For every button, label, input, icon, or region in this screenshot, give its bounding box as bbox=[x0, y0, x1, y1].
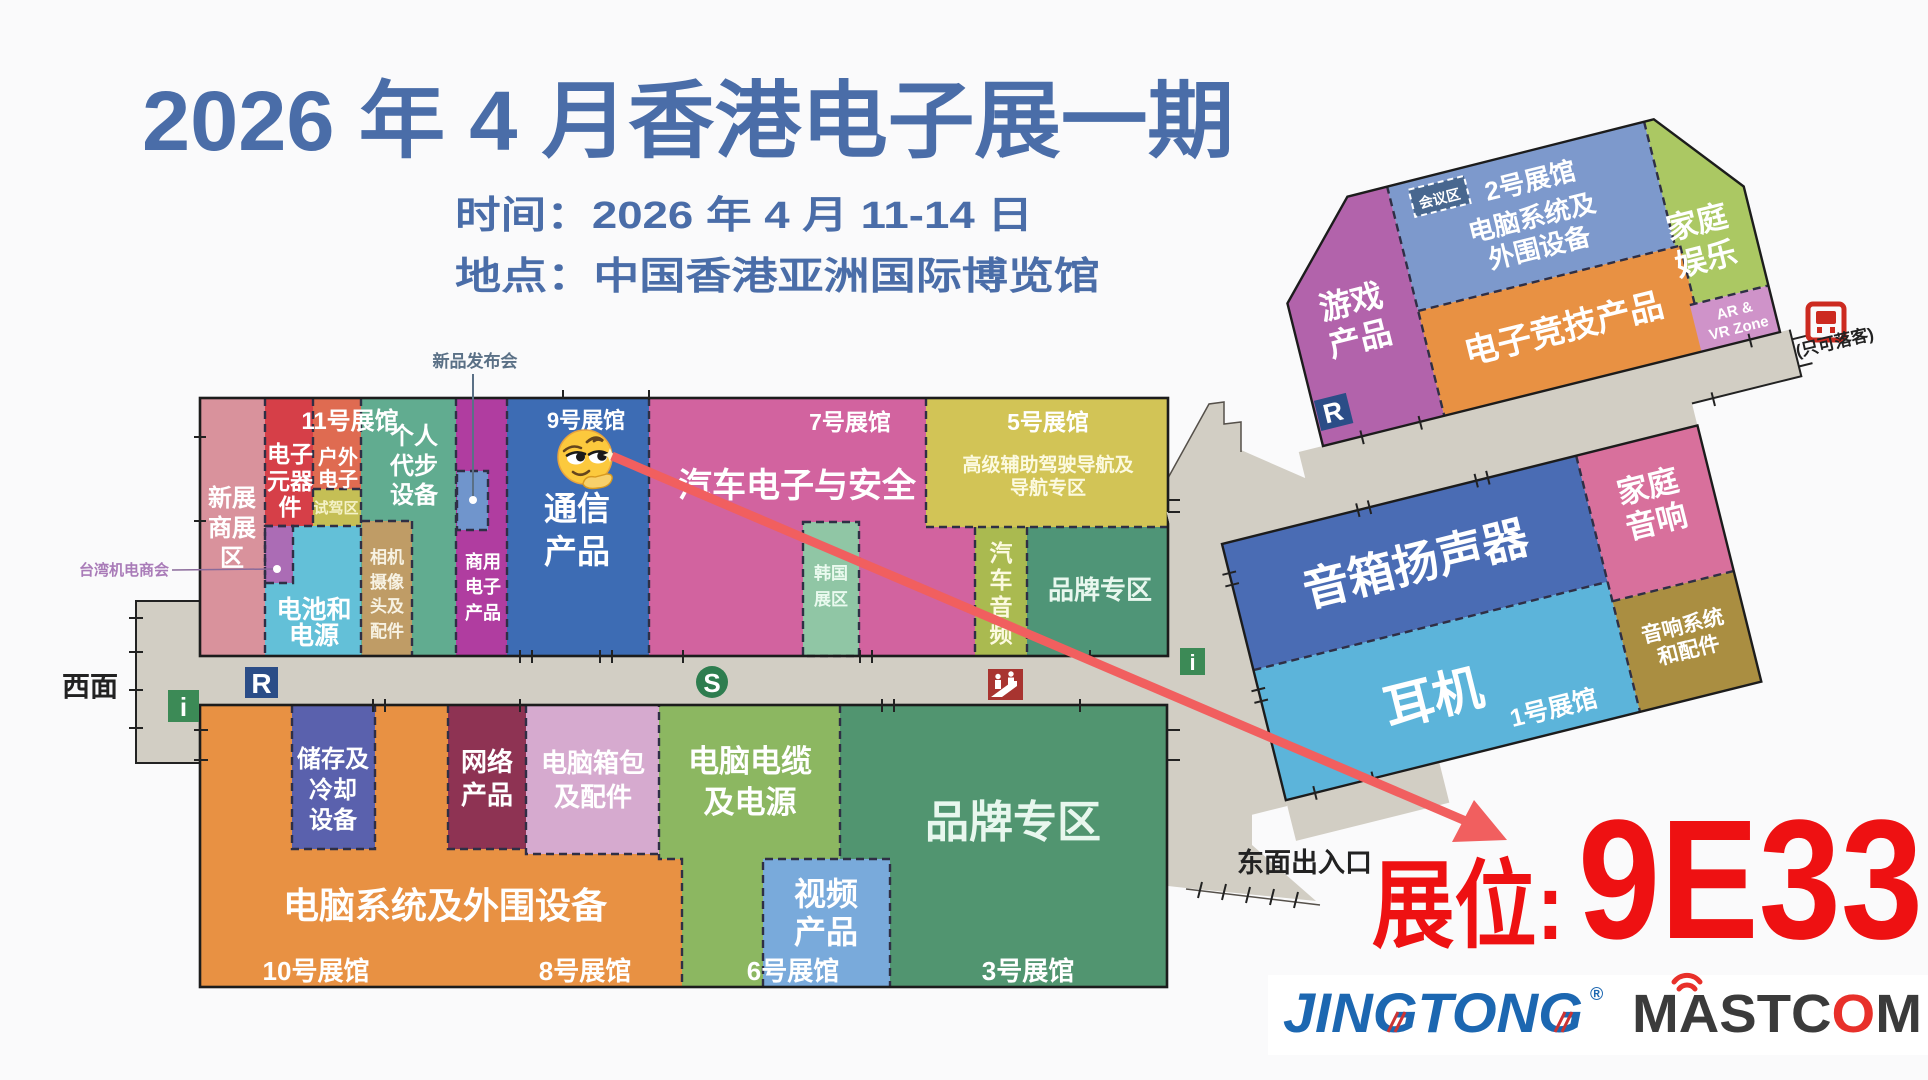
svg-text:元器: 元器 bbox=[267, 468, 314, 494]
svg-text:件: 件 bbox=[279, 494, 302, 520]
svg-text:JINGTONG: JINGTONG bbox=[1283, 981, 1583, 1044]
svg-text:试驾区: 试驾区 bbox=[313, 499, 358, 517]
svg-text:西面: 西面 bbox=[62, 671, 118, 702]
svg-text:冷却: 冷却 bbox=[309, 776, 357, 804]
svg-text:i: i bbox=[1189, 650, 1195, 675]
svg-text:5号展馆: 5号展馆 bbox=[1007, 409, 1089, 435]
svg-text:区: 区 bbox=[220, 545, 244, 572]
svg-text:11号展馆: 11号展馆 bbox=[301, 407, 398, 435]
svg-text:电池和: 电池和 bbox=[276, 596, 351, 624]
svg-text:户外: 户外 bbox=[318, 445, 358, 469]
svg-text:头及: 头及 bbox=[370, 597, 405, 616]
svg-text:9E33: 9E33 bbox=[1578, 785, 1923, 975]
svg-text:电脑电缆: 电脑电缆 bbox=[688, 744, 812, 779]
svg-text:3号展馆: 3号展馆 bbox=[982, 956, 1074, 986]
svg-text:商用: 商用 bbox=[465, 551, 501, 572]
svg-text:7号展馆: 7号展馆 bbox=[809, 409, 891, 435]
svg-text:高级辅助驾驶导航及: 高级辅助驾驶导航及 bbox=[962, 453, 1134, 476]
svg-text:电源: 电源 bbox=[289, 622, 339, 650]
svg-text:S: S bbox=[703, 668, 720, 698]
svg-text:新展: 新展 bbox=[208, 484, 256, 512]
svg-text:i: i bbox=[180, 692, 187, 722]
svg-text:产品: 产品 bbox=[544, 533, 610, 570]
svg-text:网络: 网络 bbox=[461, 747, 513, 777]
svg-text:品牌专区: 品牌专区 bbox=[1048, 575, 1152, 605]
svg-text:地点：中国香港亚洲国际博览馆: 地点：中国香港亚洲国际博览馆 bbox=[455, 256, 1100, 298]
svg-text:设备: 设备 bbox=[309, 806, 358, 834]
svg-text:产品: 产品 bbox=[461, 780, 513, 810]
svg-text:代步: 代步 bbox=[389, 453, 438, 480]
svg-text:东面出入口: 东面出入口 bbox=[1237, 847, 1372, 878]
svg-text:电子: 电子 bbox=[318, 468, 358, 491]
svg-text:台湾机电商会: 台湾机电商会 bbox=[79, 561, 169, 579]
svg-text:个人: 个人 bbox=[390, 423, 438, 450]
svg-text:设备: 设备 bbox=[390, 481, 439, 509]
svg-text:通信: 通信 bbox=[544, 490, 610, 527]
svg-text:电子: 电子 bbox=[465, 576, 501, 597]
svg-text:汽: 汽 bbox=[990, 540, 1013, 566]
svg-text:10号展馆: 10号展馆 bbox=[263, 956, 370, 986]
svg-text:展位:: 展位: bbox=[1372, 853, 1564, 960]
svg-text:及电源: 及电源 bbox=[704, 785, 797, 820]
svg-text:R: R bbox=[251, 668, 271, 699]
svg-text:车: 车 bbox=[990, 567, 1013, 593]
svg-text:导航专区: 导航专区 bbox=[1010, 476, 1086, 499]
svg-text:8号展馆: 8号展馆 bbox=[539, 956, 631, 986]
svg-text:时间：2026 年 4 月 11-14 日: 时间：2026 年 4 月 11-14 日 bbox=[455, 195, 1033, 237]
svg-text:品牌专区: 品牌专区 bbox=[925, 798, 1101, 847]
svg-text:6号展馆: 6号展馆 bbox=[747, 956, 839, 986]
svg-text:新品发布会: 新品发布会 bbox=[433, 351, 518, 371]
svg-text:及配件: 及配件 bbox=[554, 782, 632, 812]
svg-text:产品: 产品 bbox=[794, 914, 858, 950]
svg-text:配件: 配件 bbox=[370, 621, 404, 641]
svg-text:商展: 商展 bbox=[208, 514, 256, 542]
svg-text:摄像: 摄像 bbox=[370, 572, 405, 592]
svg-text:®: ® bbox=[1590, 984, 1603, 1004]
svg-text:2026 年 4 月香港电子展一期: 2026 年 4 月香港电子展一期 bbox=[142, 74, 1234, 168]
svg-text:电脑系统及外围设备: 电脑系统及外围设备 bbox=[283, 885, 608, 926]
svg-text:电子: 电子 bbox=[267, 441, 313, 467]
svg-text:9号展馆: 9号展馆 bbox=[547, 408, 625, 433]
svg-text:产品: 产品 bbox=[465, 602, 501, 623]
svg-text:韩国: 韩国 bbox=[814, 563, 848, 583]
svg-text:展区: 展区 bbox=[814, 590, 848, 609]
svg-text:相机: 相机 bbox=[370, 547, 404, 567]
svg-text:MASTCOM: MASTCOM bbox=[1632, 984, 1922, 1044]
svg-text:视频: 视频 bbox=[794, 876, 858, 912]
svg-text:储存及: 储存及 bbox=[297, 745, 369, 773]
svg-text:电脑箱包: 电脑箱包 bbox=[541, 748, 645, 778]
